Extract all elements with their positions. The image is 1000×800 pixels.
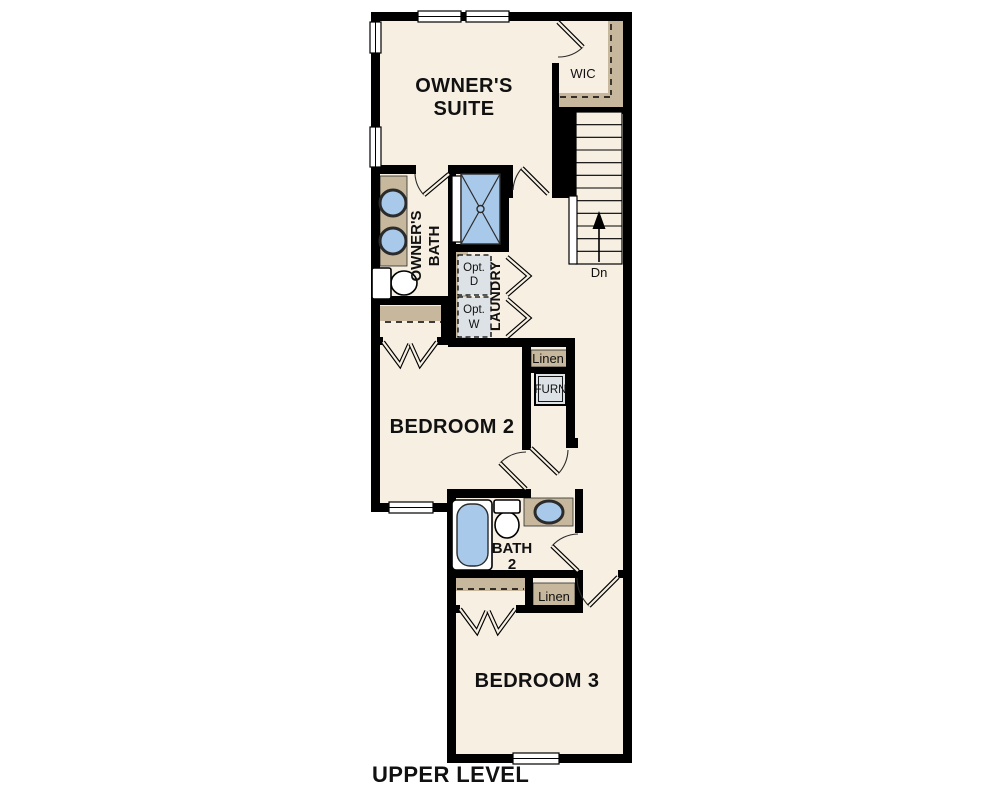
toilet-bowl [495, 512, 519, 538]
label-linen-hall: Linen [532, 351, 564, 366]
room-label-owners-bath-2: BATH [426, 226, 443, 267]
bath2-sink [535, 501, 563, 523]
bath-closet-shelf [373, 306, 449, 321]
bath-sink [380, 190, 406, 216]
room-label-bath2-1: BATH [492, 540, 533, 557]
room-label-bedroom3: BEDROOM 3 [475, 670, 600, 692]
furnace-closet: FURN [535, 373, 567, 405]
opt-washer-label-2: W [469, 319, 480, 331]
bathtub [457, 504, 488, 566]
opt-dryer-label-1: Opt. [463, 262, 485, 274]
opt-washer-label-1: Opt. [463, 304, 485, 316]
room-label-owners-suite-2: SUITE [434, 98, 495, 120]
toilet-tank [494, 500, 520, 513]
room-label-bath2-2: 2 [508, 556, 516, 573]
stairs-down-label: Dn [591, 265, 608, 280]
shower-door-track [452, 176, 461, 242]
floor-plan: Dn Opt. D Opt. W LAUNDRY FURN [0, 0, 1000, 800]
room-label-owners-bath-1: OWNER'S [408, 210, 425, 281]
room-label-owners-suite-1: OWNER'S [415, 75, 513, 97]
laundry-label: LAUNDRY [487, 261, 503, 331]
toilet-tank [372, 268, 391, 299]
opt-dryer-label-2: D [470, 276, 478, 288]
staircase: Dn [569, 112, 622, 280]
plan-title: UPPER LEVEL [372, 762, 529, 787]
bath-sink [380, 228, 406, 254]
room-label-wic: WIC [570, 66, 595, 81]
room-label-bedroom2: BEDROOM 2 [390, 416, 515, 438]
shower-drain [477, 206, 484, 213]
furnace-label: FURN [535, 384, 567, 396]
wic-shelf-bottom [558, 93, 623, 107]
label-linen-bath: Linen [538, 589, 570, 604]
stair-railing [569, 196, 577, 264]
